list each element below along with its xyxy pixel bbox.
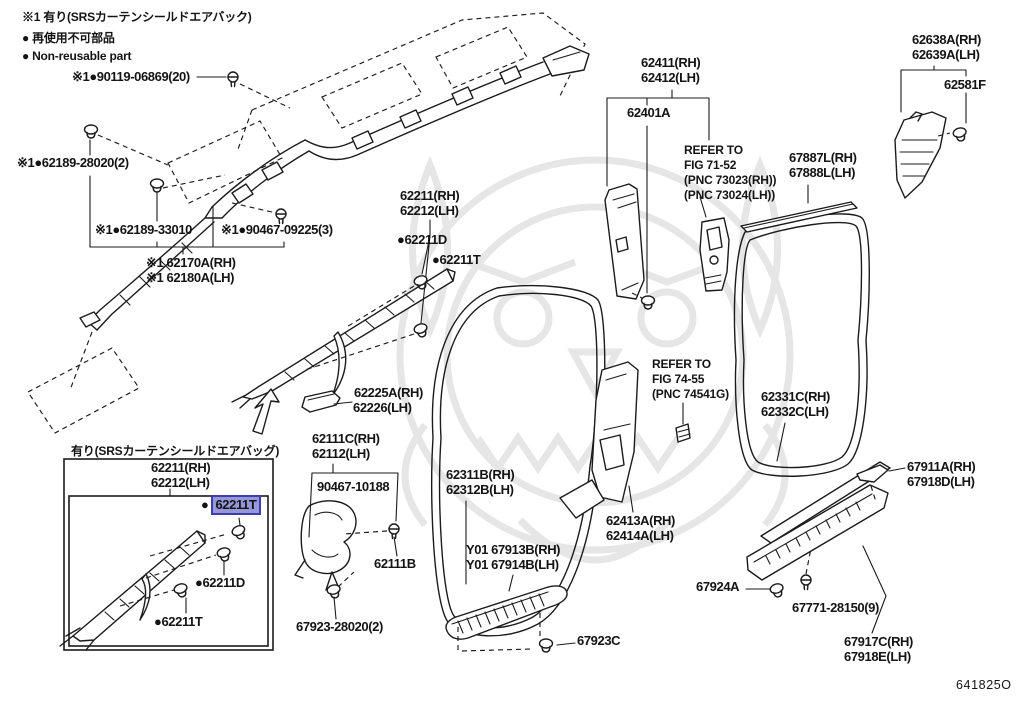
refer-fig-74-55-line1: REFER TO — [652, 357, 711, 372]
b-pillar-lower-garnish-drawing — [560, 362, 638, 518]
part-label-62211T[interactable]: ●62211T — [432, 253, 480, 268]
part-label-67923C[interactable]: 67923C — [577, 634, 620, 649]
part-label-67918D[interactable]: 67918D(LH) — [907, 475, 975, 490]
part-label-90467-10188[interactable]: 90467-10188 — [317, 480, 389, 495]
legend-non-reusable-jp: ●再使用不可部品 — [22, 31, 115, 46]
legend-non-reusable-jp-text: 再使用不可部品 — [32, 31, 115, 45]
part-label-62312B[interactable]: 62312B(LH) — [446, 483, 514, 498]
part-label-62112[interactable]: 62112(LH) — [312, 447, 370, 462]
part-label-62189-33010[interactable]: ※1●62189-33010 — [95, 223, 192, 238]
part-label-62331C[interactable]: 62331C(RH) — [761, 390, 830, 405]
highlighted-part-number[interactable]: 62211T — [211, 495, 261, 515]
small-clip-part-drawing — [676, 424, 690, 442]
part-label-62212[interactable]: 62212(LH) — [400, 204, 459, 219]
part-label-62311B[interactable]: 62311B(RH) — [446, 468, 514, 483]
inset-title: 有り(SRSカーテンシールドエアバッグ) — [71, 444, 279, 459]
part-label-62401A[interactable]: 62401A — [627, 106, 670, 121]
part-label-62638A[interactable]: 62638A(RH) — [912, 33, 981, 48]
part-label-62189-28020[interactable]: ※1●62189-28020(2) — [17, 156, 129, 171]
part-label-Y01-67913B[interactable]: Y01 67913B(RH) — [466, 543, 560, 558]
part-label-62332C[interactable]: 62332C(LH) — [761, 405, 829, 420]
parts-diagram-canvas: ※1 有り(SRSカーテンシールドエアバック) ●再使用不可部品 ●Non-re… — [0, 0, 1024, 707]
bullet-icon: ● — [201, 497, 208, 512]
part-label-62111B[interactable]: 62111B — [374, 557, 416, 572]
quarter-pillar-garnish-drawing — [895, 112, 950, 198]
part-label-67918E[interactable]: 67918E(LH) — [844, 650, 911, 665]
legend-non-reusable-en-text: Non-reusable part — [32, 49, 131, 63]
b-pillar-upper-garnish-drawing — [605, 184, 644, 299]
part-label-67911A[interactable]: 67911A(RH) — [907, 460, 975, 475]
part-label-62211D[interactable]: ●62211D — [397, 233, 447, 248]
pad-62225A-drawing — [302, 391, 340, 412]
part-label-62211[interactable]: 62211(RH) — [400, 189, 459, 204]
switch-panel-drawing — [700, 218, 729, 291]
legend-non-reusable-en: ●Non-reusable part — [22, 49, 131, 64]
part-label-67923-28020[interactable]: 67923-28020(2) — [296, 620, 383, 635]
part-label-67887L[interactable]: 67887L(RH) — [789, 151, 857, 166]
legend-note-srs: ※1 有り(SRSカーテンシールドエアバック) — [22, 10, 252, 25]
inset-a-pillar-garnish-drawing — [60, 531, 227, 650]
cowl-side-trim-drawing — [295, 501, 387, 590]
refer-fig-71-52-line1: REFER TO — [684, 143, 743, 158]
part-label-62581F[interactable]: 62581F — [944, 78, 986, 93]
bullet-icon: ● — [22, 31, 29, 45]
inset-part-label-62211T-bottom[interactable]: ●62211T — [154, 615, 202, 630]
part-label-67924A[interactable]: 67924A — [696, 580, 739, 595]
belt-molding-drawing — [741, 202, 857, 232]
part-label-90467-09225[interactable]: ※1●90467-09225(3) — [221, 223, 333, 238]
refer-fig-71-52-line3: (PNC 73023(RH)) — [684, 173, 776, 188]
part-label-62412[interactable]: 62412(LH) — [641, 71, 700, 86]
part-label-62111C[interactable]: 62111C(RH) — [312, 432, 380, 447]
refer-fig-74-55-line2: FIG 74-55 — [652, 372, 704, 387]
part-label-62225A[interactable]: 62225A(RH) — [354, 386, 423, 401]
rear-door-opening-trim-drawing — [734, 214, 869, 476]
part-label-62180A[interactable]: ※1 62180A(LH) — [146, 271, 234, 286]
part-label-67888L[interactable]: 67888L(LH) — [789, 166, 855, 181]
part-label-62226[interactable]: 62226(LH) — [353, 401, 412, 416]
part-label-67917C[interactable]: 67917C(RH) — [844, 635, 913, 650]
bullet-icon: ● — [22, 49, 29, 63]
inset-part-label-62211D[interactable]: ●62211D — [195, 576, 245, 591]
part-label-62413A[interactable]: 62413A(RH) — [606, 514, 675, 529]
part-label-67771-28150[interactable]: 67771-28150(9) — [792, 601, 879, 616]
refer-fig-74-55-line3: (PNC 74541G) — [652, 387, 729, 402]
inset-part-label-62211[interactable]: 62211(RH) — [151, 461, 210, 476]
inset-part-label-62211T-highlighted[interactable]: ●62211T — [201, 498, 261, 513]
refer-fig-71-52-line2: FIG 71-52 — [684, 158, 736, 173]
diagram-code: 641825O — [956, 678, 1012, 693]
part-label-Y01-67914B[interactable]: Y01 67914B(LH) — [466, 558, 559, 573]
part-label-62414A[interactable]: 62414A(LH) — [606, 529, 674, 544]
part-label-90119-06869[interactable]: ※1●90119-06869(20) — [72, 70, 190, 85]
refer-fig-71-52-line4: (PNC 73024(LH)) — [684, 188, 775, 203]
inset-part-label-62212[interactable]: 62212(LH) — [151, 476, 210, 491]
part-label-62639A[interactable]: 62639A(LH) — [912, 48, 980, 63]
part-label-62170A[interactable]: ※1 62170A(RH) — [146, 256, 236, 271]
part-label-62411[interactable]: 62411(RH) — [641, 56, 700, 71]
